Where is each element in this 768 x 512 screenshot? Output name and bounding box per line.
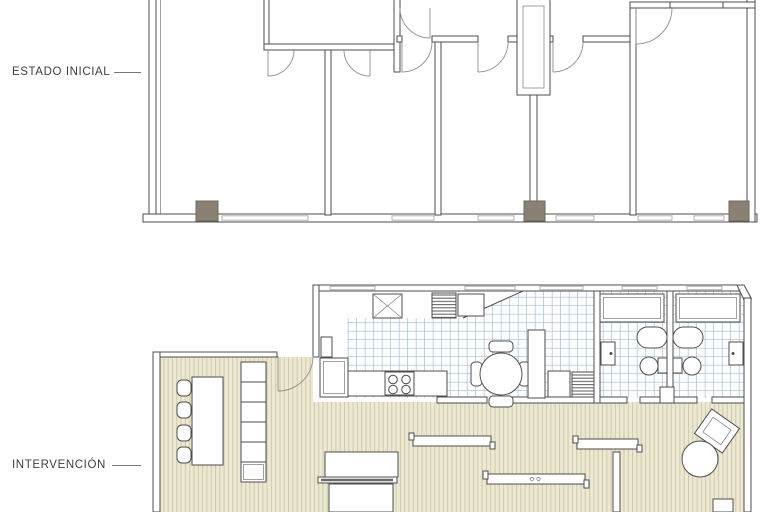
round-table-icon xyxy=(682,441,718,477)
pillar-icon xyxy=(524,201,545,221)
sliding-panel-icon xyxy=(577,439,638,449)
bathtub-icon xyxy=(637,327,667,348)
plans-canvas xyxy=(0,0,768,512)
chair-icon xyxy=(177,447,191,463)
cabinet-icon xyxy=(713,499,733,512)
washer-icon xyxy=(572,372,594,397)
wardrobe-icon xyxy=(325,452,398,477)
chair-icon xyxy=(489,341,513,352)
sliding-panel-icon xyxy=(487,474,585,484)
intervencion-plan xyxy=(153,285,752,512)
cabinet-icon xyxy=(458,294,484,316)
bed-icon xyxy=(329,484,393,512)
vent-grille-icon xyxy=(432,293,456,318)
floorplan-sheet: ESTADO INICIAL INTERVENCIÓN xyxy=(0,0,768,512)
toilet-icon xyxy=(640,357,658,375)
radiator-icon xyxy=(321,337,332,357)
estado-inicial-plan xyxy=(143,0,757,222)
round-dining-table-icon xyxy=(480,353,522,395)
interior-walls xyxy=(264,0,636,215)
chair-icon xyxy=(489,396,513,407)
chair-icon xyxy=(177,380,191,396)
sink-icon xyxy=(729,342,743,365)
shower-tray-icon xyxy=(676,294,740,322)
long-table-icon xyxy=(192,377,223,465)
chair-icon xyxy=(177,425,191,441)
cabinet-icon xyxy=(548,371,570,397)
pillar-icon xyxy=(729,201,749,221)
toilet-icon xyxy=(683,357,701,375)
fridge-icon xyxy=(320,358,348,397)
cabinet-icon xyxy=(528,330,545,398)
chair-icon xyxy=(177,402,191,418)
sink-icon xyxy=(601,342,615,365)
bathtub-icon xyxy=(673,327,703,348)
pillar-icon xyxy=(196,201,218,221)
shower-tray-icon xyxy=(600,294,664,322)
outer-walls xyxy=(143,0,757,222)
sliding-panel-icon xyxy=(413,436,491,446)
